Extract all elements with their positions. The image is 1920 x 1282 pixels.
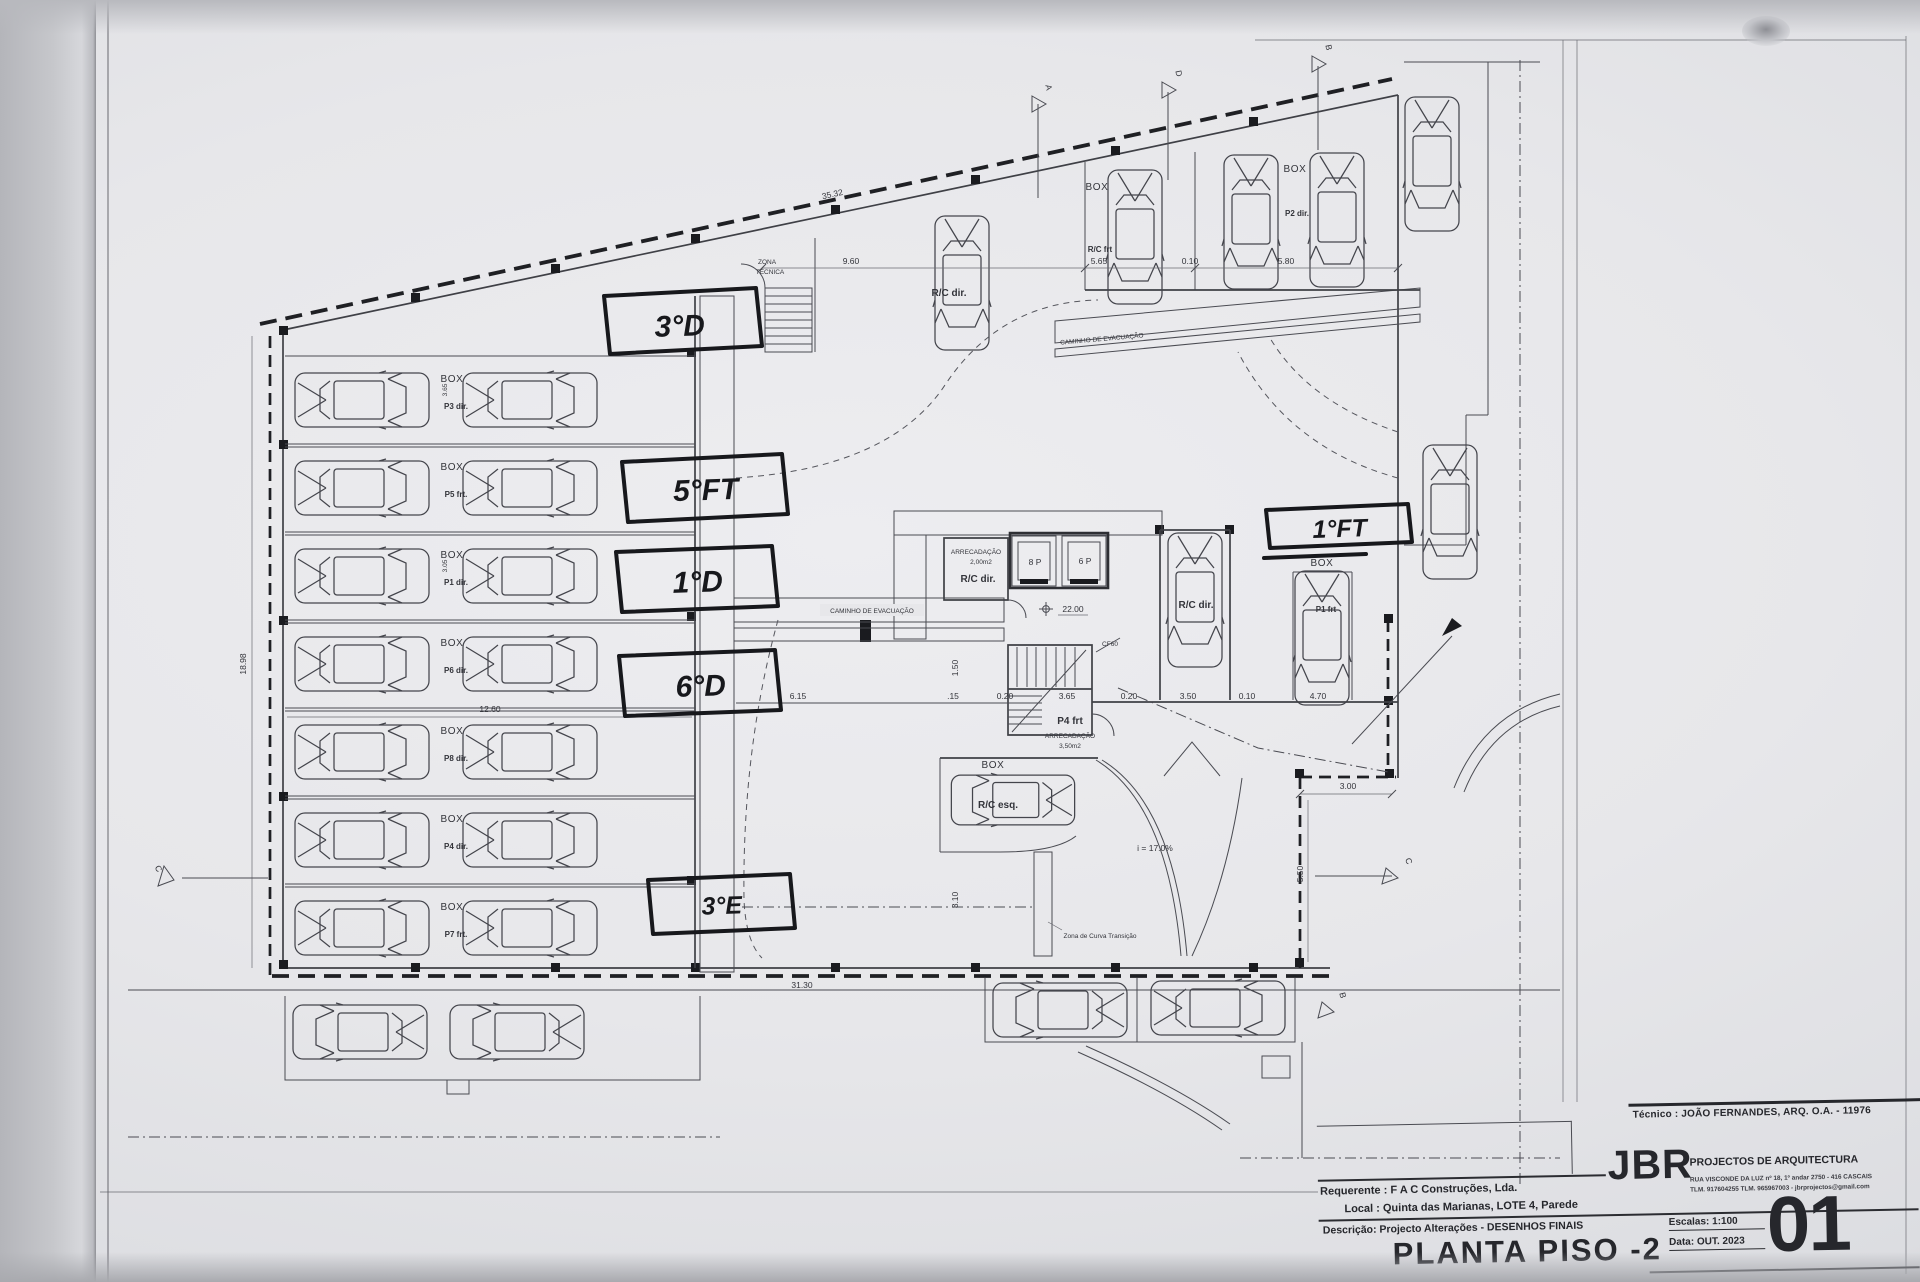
location-value: Quinta das Marianas, LOTE 4, Parede xyxy=(1383,1199,1578,1215)
dim: 6.15 xyxy=(790,691,807,701)
handwritten-annotations: 3°D 5°FT 1°D 6°D 3°E 1°FT xyxy=(604,288,1412,934)
dim: 9.60 xyxy=(843,256,860,266)
storage-area: 2,00m2 xyxy=(970,559,992,566)
stall-dim: 3.65 xyxy=(442,383,449,396)
stall-label: P1 dir. xyxy=(444,578,468,587)
storage-room-unit: R/C dir. xyxy=(960,574,995,585)
parked-car xyxy=(295,371,429,429)
box-label: BOX xyxy=(441,462,464,473)
stall-label: R/C dir. xyxy=(1178,600,1213,611)
parked-car xyxy=(463,371,597,429)
technician-row: Técnico : JOÃO FERNANDES, ARQ. O.A. - 11… xyxy=(1633,1104,1919,1120)
section-marker-a: A xyxy=(1043,84,1054,92)
box-label: BOX xyxy=(441,902,464,913)
frame-corner-box xyxy=(1317,1121,1573,1179)
client-value: F A C Construções, Lda. xyxy=(1390,1182,1517,1196)
storage-label: ARRECADAÇÃO xyxy=(1045,731,1095,740)
stall-label: P8 dir. xyxy=(444,754,468,763)
box-label: BOX xyxy=(441,374,464,385)
parked-car xyxy=(1308,153,1366,287)
zona-tecnica-label-1: ZONA xyxy=(758,259,777,266)
scale-row: Escalas: 1:100 xyxy=(1669,1215,1765,1231)
stall-label: P6 dir. xyxy=(444,666,468,675)
location-label: Local : xyxy=(1344,1203,1380,1216)
dim: 35.32 xyxy=(821,187,844,201)
stall-label: R/C dir. xyxy=(931,288,966,299)
drawing-title: PLANTA PISO -2 xyxy=(1347,1230,1708,1273)
parked-car xyxy=(295,459,429,517)
dim: .15 xyxy=(947,691,959,701)
dim: 1.50 xyxy=(950,659,960,676)
parked-car xyxy=(463,811,597,869)
stall-label: P3 dir. xyxy=(444,402,468,411)
photographed-floor-plan-sheet: BOX P3 dir. BOX P5 frt. BOX P1 dir. BOX … xyxy=(0,0,1920,1282)
client-row: Requerente : F A C Construções, Lda. xyxy=(1320,1182,1517,1198)
box-label: BOX xyxy=(441,814,464,825)
box-label: BOX xyxy=(1086,182,1109,193)
date-value: OUT. 2023 xyxy=(1697,1236,1745,1248)
scale-value: 1:100 xyxy=(1712,1216,1738,1227)
lift-label: 8 P xyxy=(1029,557,1042,567)
section-marker-b: B xyxy=(1323,44,1334,52)
stall-label: P2 dir. xyxy=(1285,209,1309,218)
scale-label: Escalas: xyxy=(1669,1216,1710,1228)
ramp-slope-label: i = 17.0% xyxy=(1137,843,1173,853)
dim: 5.65 xyxy=(1091,256,1108,266)
parked-car xyxy=(463,899,597,957)
dim: 3.00 xyxy=(1340,781,1357,791)
dim: 31.30 xyxy=(791,980,813,990)
zona-tecnica: ZONA TÉCNICA xyxy=(741,238,815,352)
dim: 0.10 xyxy=(1239,691,1256,701)
parked-car xyxy=(295,547,429,605)
parked-car xyxy=(295,723,429,781)
site-boundary xyxy=(260,79,1398,976)
handwritten-unit: 3°E xyxy=(701,891,744,920)
stall-label: P5 frt. xyxy=(445,490,468,499)
parked-car xyxy=(463,459,597,517)
box-label: BOX xyxy=(1284,164,1307,175)
dim: 4.70 xyxy=(1310,691,1327,701)
street-car xyxy=(1151,979,1285,1037)
title-block: Técnico : JOÃO FERNANDES, ARQ. O.A. - 11… xyxy=(1316,1080,1920,1282)
dim: 3.50 xyxy=(1180,691,1197,701)
description-label: Descrição: xyxy=(1323,1224,1377,1237)
date-label: Data: xyxy=(1669,1237,1694,1248)
stall-label: P7 frt. xyxy=(445,930,468,939)
stall-label: R/C esq. xyxy=(978,800,1018,811)
stall-label: P4 dir. xyxy=(444,842,468,851)
dim: 3.65 xyxy=(1059,691,1076,701)
street-car xyxy=(293,1003,427,1061)
box-label: BOX xyxy=(1311,558,1334,569)
parked-car xyxy=(933,216,991,350)
ramp-and-driveway: BOX R/C esq. i = 17.0% Zona de Curva Tra… xyxy=(736,300,1462,958)
dim: 5.50 xyxy=(1295,865,1305,882)
client-label: Requerente : xyxy=(1320,1184,1387,1197)
handwritten-unit: 6°D xyxy=(675,669,726,704)
hatched-walls xyxy=(700,288,1420,972)
box-label: BOX xyxy=(982,760,1005,771)
storage-unit-label: P4 frt xyxy=(1057,716,1083,727)
section-marker-c: C xyxy=(1403,856,1414,865)
location-row: Local : Quinta das Marianas, LOTE 4, Par… xyxy=(1344,1199,1578,1215)
parked-car xyxy=(463,723,597,781)
firm-name: PROJECTOS DE ARQUITECTURA xyxy=(1689,1153,1858,1168)
dim: 18.98 xyxy=(238,653,248,675)
dim: 0.20 xyxy=(997,691,1014,701)
box-label: BOX xyxy=(441,550,464,561)
section-marker-b: B xyxy=(1337,991,1348,999)
parked-car xyxy=(463,547,597,605)
fire-door-label: CF60 xyxy=(1102,641,1118,648)
storage-label: ARRECADAÇÃO xyxy=(951,547,1001,556)
curve-zone-label: Zona de Curva Transição xyxy=(1064,933,1137,940)
handwritten-unit: 1°FT xyxy=(1312,514,1370,544)
stall-label: P1 frt xyxy=(1316,605,1337,614)
handwritten-unit: 5°FT xyxy=(672,473,741,508)
section-marker-d: D xyxy=(1173,69,1184,77)
dim: 5.80 xyxy=(1278,256,1295,266)
parked-car xyxy=(295,635,429,693)
parked-car xyxy=(463,635,597,693)
evacuation-path-label: CAMINHO DE EVACUAÇÃO xyxy=(830,606,914,615)
box-label: BOX xyxy=(441,726,464,737)
level-mark: 22.00 xyxy=(1062,604,1084,614)
handwritten-unit: 1°D xyxy=(672,565,723,600)
street-car xyxy=(1421,445,1479,579)
sheet-number: 01 xyxy=(1766,1178,1850,1271)
street-car xyxy=(1403,97,1461,231)
parked-car xyxy=(1222,155,1280,289)
stall-dim: 3.05 xyxy=(442,559,449,572)
box-label: BOX xyxy=(441,638,464,649)
top-centre-stall: R/C dir. xyxy=(931,216,991,350)
dim: 12.60 xyxy=(479,704,501,714)
dim: 3.10 xyxy=(950,891,960,908)
firm-initials: JBR xyxy=(1607,1141,1693,1190)
left-parking-block: BOX P3 dir. BOX P5 frt. BOX P1 dir. BOX … xyxy=(285,296,695,968)
dim: 0.10 xyxy=(1182,256,1199,266)
storage-area: 3,50m2 xyxy=(1059,743,1081,750)
top-right-parking: BOX R/C frt BOX P2 dir. CAMINHO DE EVACU… xyxy=(1060,152,1420,347)
parked-car xyxy=(1106,170,1164,304)
date-row: Data: OUT. 2023 xyxy=(1669,1235,1765,1251)
street-car xyxy=(450,1003,584,1061)
lift-label: 6 P xyxy=(1079,556,1092,566)
stall-label: R/C frt xyxy=(1088,245,1113,254)
parked-car xyxy=(1293,571,1351,705)
handwritten-unit: 3°D xyxy=(654,309,705,344)
dim: 0.20 xyxy=(1121,691,1138,701)
parked-car xyxy=(295,811,429,869)
dimensions: 35.32 9.60 5.65 0.10 5.80 18.98 12.60 31… xyxy=(238,187,1402,990)
parked-car xyxy=(295,899,429,957)
